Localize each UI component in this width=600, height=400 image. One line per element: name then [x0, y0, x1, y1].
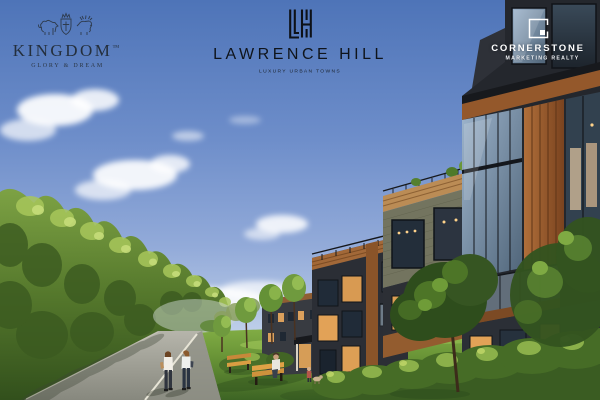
lawrence-hill-monogram-icon — [287, 8, 314, 39]
marketing-hero-image: KINGDOM™ GLORY & DREAM LAWRENCE HILL LUX… — [0, 0, 600, 400]
project-tagline: LUXURY URBAN TOWNS — [237, 68, 364, 74]
broker-tagline: MARKETING REALTY — [506, 55, 571, 61]
kingdom-name: KINGDOM™ — [8, 41, 124, 61]
cornerstone-logo: CORNERSTONE MARKETING REALTY — [482, 18, 594, 65]
broker-name: CORNERSTONE — [482, 43, 594, 54]
kingdom-tagline: GLORY & DREAM — [31, 62, 101, 69]
kingdom-logo: KINGDOM™ GLORY & DREAM — [8, 12, 124, 73]
cornerstone-square-mark-icon — [528, 18, 549, 39]
lawrence-hill-logo: LAWRENCE HILL LUXURY URBAN TOWNS — [185, 8, 415, 78]
project-name: LAWRENCE HILL — [185, 46, 415, 64]
kingdom-crest-icon — [36, 12, 96, 39]
trademark-symbol: ™ — [112, 43, 119, 51]
